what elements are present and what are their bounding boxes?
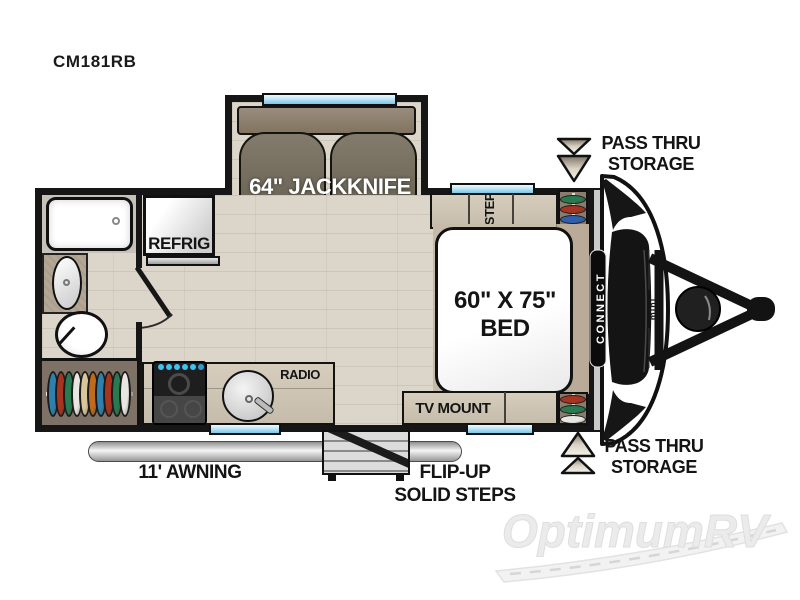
stove-burner-right — [184, 400, 202, 418]
toilet — [55, 311, 108, 358]
refrigerator-label: REFRIG — [148, 235, 210, 253]
bed-label: BED — [440, 316, 570, 342]
awning-label: 11' AWNING — [95, 463, 285, 484]
bottom-window-right — [466, 423, 534, 435]
radio-label: RADIO — [268, 368, 320, 382]
watermark-text: OptimumRV — [502, 505, 771, 557]
hitch-coupler — [747, 297, 775, 321]
clothes-hanger — [119, 371, 131, 417]
wardrobe-left — [42, 358, 140, 425]
tv-mount-label: TV MOUNT — [404, 401, 502, 417]
stove-cooktop — [152, 361, 207, 425]
pass-thru-storage-top-label: PASS THRU STORAGE — [592, 133, 710, 175]
bathroom-wall-upper — [136, 195, 142, 268]
tv-counter-divider — [504, 392, 506, 424]
bed-size-label: 60" X 75" — [440, 288, 570, 314]
kitchen-sink-drain — [245, 395, 253, 403]
propane-tank — [676, 287, 720, 331]
refrigerator: REFRIG — [143, 195, 215, 256]
sink-drain — [63, 279, 70, 286]
stove-burner-lights — [158, 364, 164, 370]
bottom-window-left — [209, 423, 281, 435]
arrow-up-icon — [560, 431, 596, 475]
stove-burner-left — [160, 400, 178, 418]
cabinet-divider-2 — [512, 194, 514, 228]
pass-thru-storage-bottom-label: PASS THRU STORAGE — [596, 436, 712, 478]
hanging-clothes-left — [47, 371, 127, 422]
sofa-backrest — [237, 106, 416, 135]
front-cap-and-hitch: CONNECT mini — [555, 160, 795, 460]
tub-drain — [112, 217, 120, 225]
brand-label: CONNECT — [595, 272, 607, 344]
cabinet-divider-1 — [468, 194, 470, 228]
steps-foot-left — [328, 474, 336, 481]
stove-burner-top — [168, 373, 190, 395]
wall-left — [35, 188, 42, 432]
wall-top-left — [35, 188, 232, 195]
floorplan-canvas: CM181RB 64" JACKKNIFE REFRIG — [0, 0, 800, 600]
refrigerator-base — [146, 256, 220, 266]
slideout-window — [262, 93, 397, 106]
shower-tub — [46, 197, 133, 251]
watermark-logo: OptimumRV — [490, 495, 795, 590]
arrow-down-icon — [556, 137, 592, 183]
page-title: CM181RB — [53, 52, 137, 72]
